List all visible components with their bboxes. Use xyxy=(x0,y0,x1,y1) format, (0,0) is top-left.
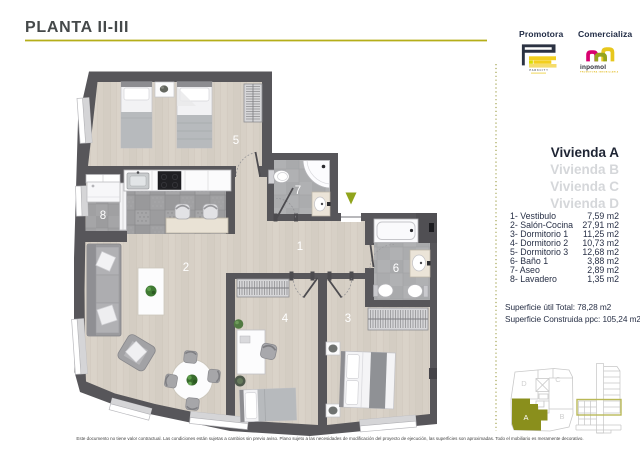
svg-text:PROMOTORA INMOBILIARIA: PROMOTORA INMOBILIARIA xyxy=(580,71,619,74)
svg-text:4: 4 xyxy=(282,313,289,325)
svg-text:8: 8 xyxy=(100,210,106,222)
svg-text:3: 3 xyxy=(345,313,351,325)
svg-text:1: 1 xyxy=(297,241,303,253)
svg-text:D: D xyxy=(521,379,527,388)
svg-text:inpomol: inpomol xyxy=(580,64,606,71)
svg-text:7: 7 xyxy=(295,185,301,197)
svg-text:PARKCITY: PARKCITY xyxy=(529,68,548,72)
svg-text:C: C xyxy=(555,375,561,384)
svg-text:5: 5 xyxy=(233,135,239,147)
svg-text:6: 6 xyxy=(393,263,399,275)
svg-text:B: B xyxy=(559,412,564,421)
svg-text:2: 2 xyxy=(183,262,189,274)
svg-text:A: A xyxy=(523,413,528,422)
